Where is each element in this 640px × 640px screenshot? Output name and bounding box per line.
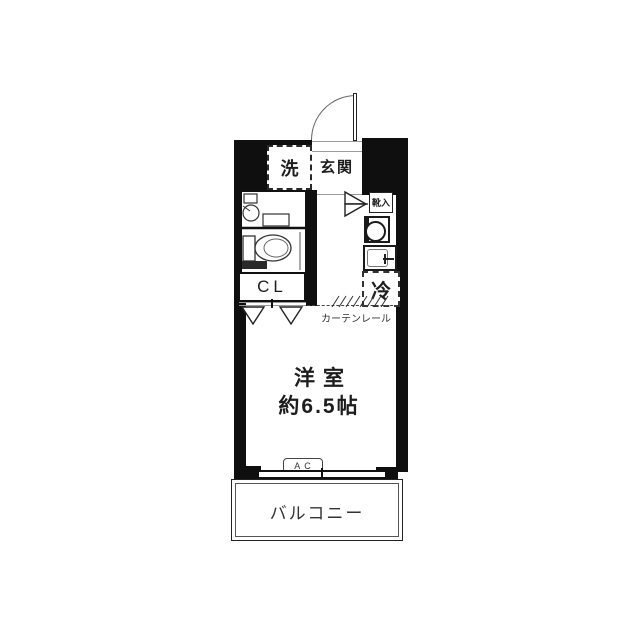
shoe-box-label: 靴入 [369,192,393,213]
washer-label: 洗 [267,145,312,190]
curtain-rail-label: カーテンレール [310,311,402,324]
curtain-rail-hatch-icon [330,295,390,308]
kitchen-sink-icon [363,245,397,271]
entry-door-arc-icon [311,95,356,140]
main-room-name-label: 洋室 [246,364,392,390]
wall-bath-partition [306,190,317,306]
entrance-label: 玄関 [312,140,362,193]
bathroom-fixtures-icon [240,190,307,274]
balcony-label: バルコニー [231,481,403,541]
closet-door-triangles-icon [240,306,306,326]
stove-icon [364,216,390,243]
main-room-size-label: 約6.5帖 [246,392,392,418]
shoe-box-doors-icon [344,190,368,218]
wall-top-right-block [362,138,408,195]
closet-label: CL [238,272,306,302]
floor-plan-image: 洗 玄関 靴入 冷 CL [0,0,640,640]
wall-right [396,195,408,472]
entry-door-leaf-icon [353,93,357,141]
